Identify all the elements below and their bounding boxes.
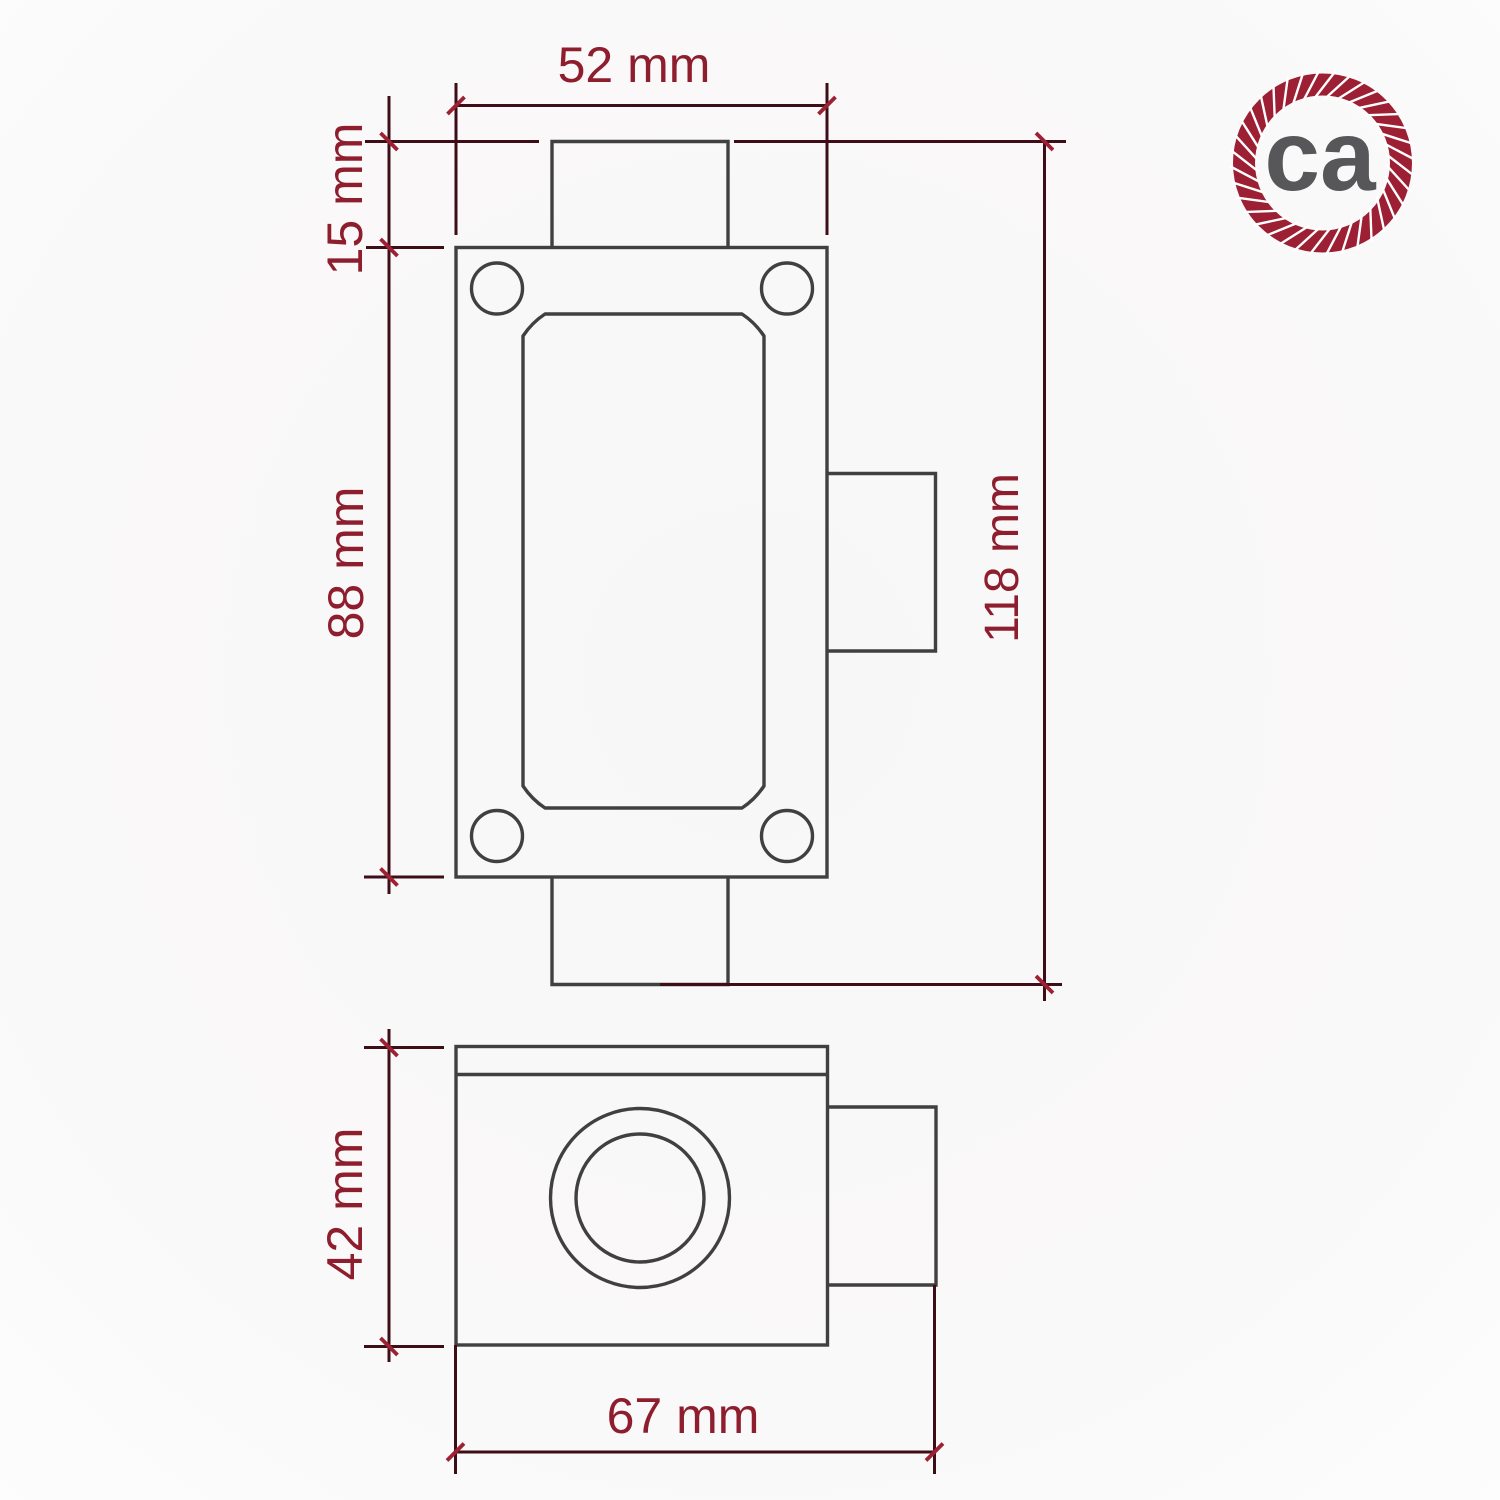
svg-text:67 mm: 67 mm xyxy=(607,1388,760,1444)
svg-text:15 mm: 15 mm xyxy=(317,123,373,276)
svg-text:52 mm: 52 mm xyxy=(558,37,711,93)
svg-text:88 mm: 88 mm xyxy=(318,487,374,640)
svg-text:ca: ca xyxy=(1264,100,1377,212)
svg-text:118 mm: 118 mm xyxy=(976,473,1029,643)
svg-text:42 mm: 42 mm xyxy=(317,1128,373,1281)
